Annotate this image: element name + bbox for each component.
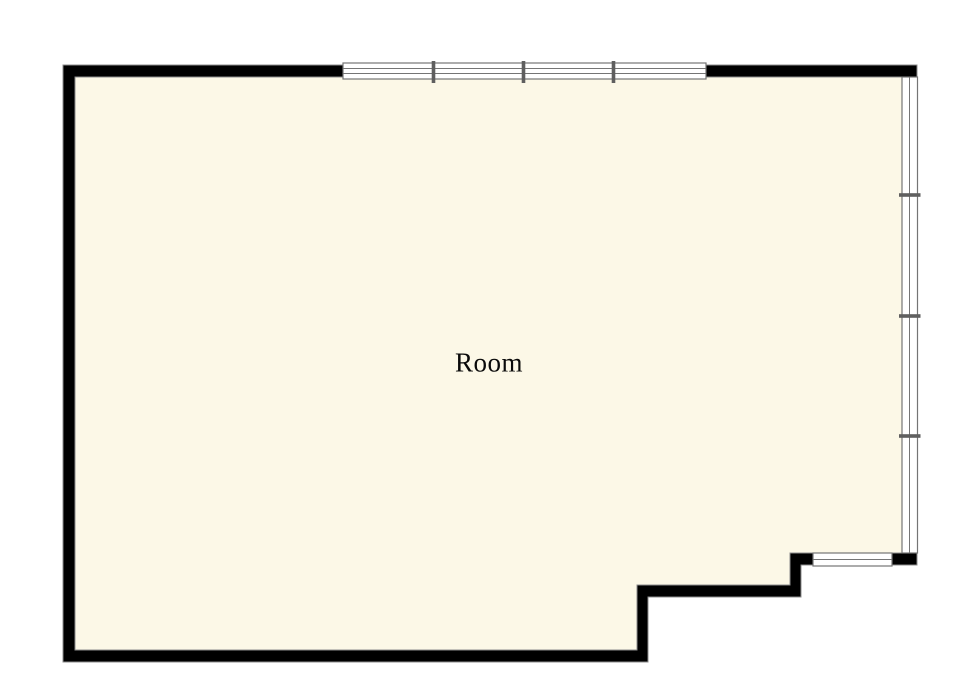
window-right-mullion xyxy=(899,193,921,197)
window-top-mullion xyxy=(612,61,616,83)
window-right-mullion xyxy=(899,434,921,438)
window-right xyxy=(899,77,921,553)
window-top-mullion xyxy=(522,61,526,83)
window-bottom-right xyxy=(813,553,892,566)
floorplan-canvas: Room xyxy=(0,0,954,700)
window-top-mullion xyxy=(432,61,436,83)
window-right-mullion xyxy=(899,314,921,318)
room-label: Room xyxy=(455,348,523,379)
